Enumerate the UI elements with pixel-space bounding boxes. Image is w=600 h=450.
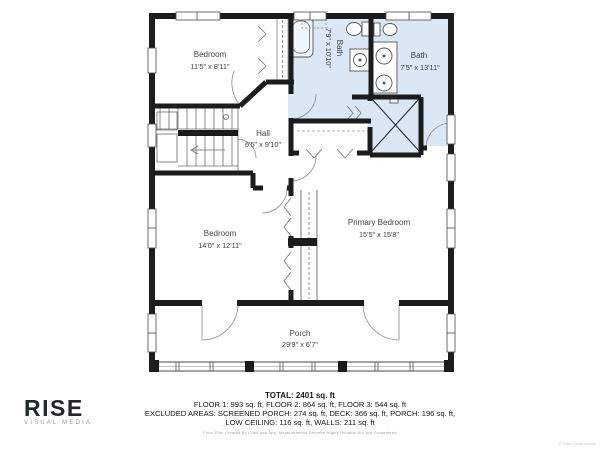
room-dims-hall: 6'5" x 9'10" [245, 140, 281, 149]
rise-logo: RISE VISUAL MEDIA [24, 397, 92, 426]
disclaimer-text: Floor Plan Created By CubiCasa App. Meas… [0, 430, 600, 435]
floor-plan-drawing: Bedroom 11'5" x 8'11" Bath 7'9" x 10'10"… [0, 0, 600, 450]
sink-icon [350, 49, 370, 71]
room-label-bath-small: Bath [335, 40, 344, 56]
logo-tagline: VISUAL MEDIA [24, 420, 92, 426]
room-dims-bedroom-upper: 11'5" x 8'11" [191, 62, 230, 71]
door-bedroom-lower [262, 188, 287, 213]
floor-plan-page: Bedroom 11'5" x 8'11" Bath 7'9" x 10'10"… [0, 0, 600, 450]
toilet-icon [347, 22, 370, 36]
porch-window-band [149, 360, 454, 372]
room-dims-bath-large: 7'5" x 13'11" [400, 63, 440, 72]
room-label-bedroom-upper: Bedroom [194, 50, 227, 59]
room-label-primary-bedroom: Primary Bedroom [348, 218, 411, 227]
room-label-porch: Porch [290, 329, 311, 338]
stair-divider-wall [178, 130, 238, 136]
vanity-double-sink-icon [373, 42, 397, 93]
watermark-text: © Rise Visual Media [559, 441, 595, 446]
room-dims-primary-bedroom: 15'5" x 15'8" [359, 230, 399, 239]
door-porch-left [202, 304, 238, 340]
room-dims-bath-small: 7'9" x 10'10" [324, 28, 333, 68]
room-label-bedroom-lower: Bedroom [204, 229, 237, 238]
room-dims-bedroom-lower: 14'0" x 12'11" [198, 241, 242, 250]
logo-text: RISE [24, 397, 92, 419]
door-porch-right [363, 304, 399, 340]
door-primary-bedroom [291, 156, 316, 181]
room-label-hall: Hall [256, 129, 270, 138]
door-bedroom-upper [232, 71, 240, 105]
staircase [152, 106, 238, 173]
toilet-icon-2 [374, 23, 397, 36]
room-dims-porch: 29'9" x 6'7" [282, 340, 318, 349]
room-label-bath-large: Bath [411, 51, 427, 60]
